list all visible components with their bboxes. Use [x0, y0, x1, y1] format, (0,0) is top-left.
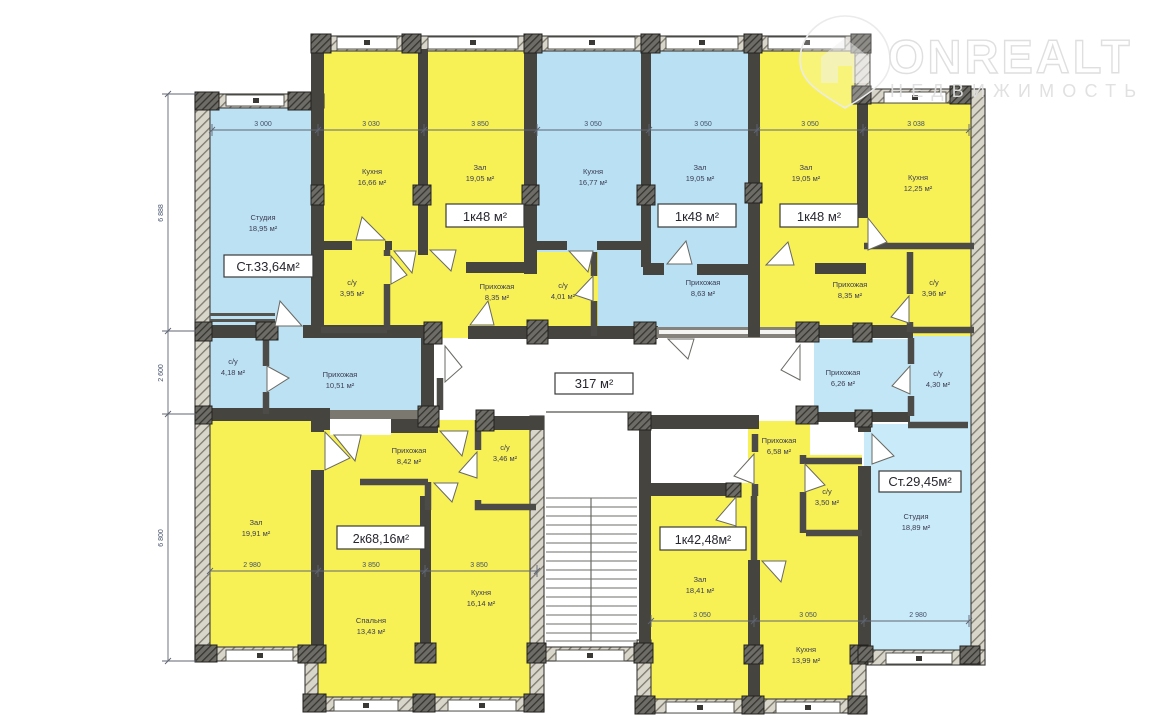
svg-text:16,66 м²: 16,66 м² — [358, 178, 387, 187]
svg-text:4,18 м²: 4,18 м² — [221, 368, 246, 377]
svg-text:Прихожая: Прихожая — [762, 436, 797, 445]
svg-text:Зал: Зал — [799, 163, 812, 172]
svg-text:3 030: 3 030 — [362, 121, 380, 128]
svg-text:4,30 м²: 4,30 м² — [926, 380, 951, 389]
svg-text:12,25 м²: 12,25 м² — [904, 184, 933, 193]
svg-text:Студия: Студия — [903, 512, 928, 521]
svg-text:18,89 м²: 18,89 м² — [902, 523, 931, 532]
svg-text:Ст.33,64м²: Ст.33,64м² — [236, 259, 300, 274]
svg-text:19,05 м²: 19,05 м² — [466, 174, 495, 183]
svg-text:с/у: с/у — [228, 357, 238, 366]
svg-text:2 600: 2 600 — [158, 364, 165, 382]
svg-text:16,14 м²: 16,14 м² — [467, 599, 496, 608]
svg-text:3 850: 3 850 — [362, 562, 380, 569]
svg-text:Ст.29,45м²: Ст.29,45м² — [888, 474, 952, 489]
svg-text:Кухня: Кухня — [908, 173, 928, 182]
svg-text:3 038: 3 038 — [907, 121, 925, 128]
svg-text:Зал: Зал — [693, 575, 706, 584]
svg-text:Прихожая: Прихожая — [833, 280, 868, 289]
svg-text:Прихожая: Прихожая — [392, 446, 427, 455]
svg-text:3 850: 3 850 — [471, 121, 489, 128]
svg-text:Прихожая: Прихожая — [826, 368, 861, 377]
svg-text:8,42 м²: 8,42 м² — [397, 457, 422, 466]
svg-text:1к48 м²: 1к48 м² — [675, 209, 720, 224]
svg-text:с/у: с/у — [822, 487, 832, 496]
svg-text:2к68,16м²: 2к68,16м² — [353, 532, 409, 546]
svg-text:6 800: 6 800 — [158, 529, 165, 547]
svg-text:6,58 м²: 6,58 м² — [767, 447, 792, 456]
svg-text:ONREALT: ONREALT — [888, 30, 1133, 83]
svg-text:18,41 м²: 18,41 м² — [686, 586, 715, 595]
svg-text:Прихожая: Прихожая — [480, 282, 515, 291]
svg-text:Кухня: Кухня — [471, 588, 491, 597]
svg-text:3 050: 3 050 — [799, 612, 817, 619]
svg-text:Прихожая: Прихожая — [686, 278, 721, 287]
svg-text:4,01 м²: 4,01 м² — [551, 292, 576, 301]
svg-text:19,91 м²: 19,91 м² — [242, 529, 271, 538]
svg-text:3 050: 3 050 — [694, 121, 712, 128]
svg-text:с/у: с/у — [347, 278, 357, 287]
svg-text:Зал: Зал — [249, 518, 262, 527]
svg-text:3,95 м²: 3,95 м² — [340, 289, 365, 298]
svg-text:Студия: Студия — [250, 213, 275, 222]
svg-text:16,77 м²: 16,77 м² — [579, 178, 608, 187]
svg-text:Спальня: Спальня — [356, 616, 386, 625]
svg-text:3,96 м²: 3,96 м² — [922, 289, 947, 298]
svg-text:18,95 м²: 18,95 м² — [249, 224, 278, 233]
svg-text:Зал: Зал — [473, 163, 486, 172]
svg-text:с/у: с/у — [500, 443, 510, 452]
svg-text:6 888: 6 888 — [158, 204, 165, 222]
svg-text:3 850: 3 850 — [470, 562, 488, 569]
svg-text:с/у: с/у — [929, 278, 939, 287]
svg-text:3 050: 3 050 — [693, 612, 711, 619]
svg-text:13,99 м²: 13,99 м² — [792, 656, 821, 665]
svg-text:19,05 м²: 19,05 м² — [792, 174, 821, 183]
svg-text:3 050: 3 050 — [584, 121, 602, 128]
svg-text:1к42,48м²: 1к42,48м² — [675, 533, 731, 547]
svg-text:НЕДВИЖИМОСТЬ: НЕДВИЖИМОСТЬ — [890, 81, 1144, 101]
svg-text:8,63 м²: 8,63 м² — [691, 289, 716, 298]
svg-text:Кухня: Кухня — [796, 645, 816, 654]
svg-text:Кухня: Кухня — [583, 167, 603, 176]
svg-text:8,35 м²: 8,35 м² — [838, 291, 863, 300]
svg-text:с/у: с/у — [933, 369, 943, 378]
svg-text:Зал: Зал — [693, 163, 706, 172]
svg-text:3 050: 3 050 — [801, 121, 819, 128]
svg-text:3,46 м²: 3,46 м² — [493, 454, 518, 463]
svg-text:6,26 м²: 6,26 м² — [831, 379, 856, 388]
svg-text:8,35 м²: 8,35 м² — [485, 293, 510, 302]
svg-text:Прихожая: Прихожая — [323, 370, 358, 379]
svg-text:1к48 м²: 1к48 м² — [463, 209, 508, 224]
svg-text:2 980: 2 980 — [243, 562, 261, 569]
svg-text:13,43 м²: 13,43 м² — [357, 627, 386, 636]
svg-text:3,50 м²: 3,50 м² — [815, 498, 840, 507]
svg-text:3 000: 3 000 — [254, 121, 272, 128]
svg-text:10,51 м²: 10,51 м² — [326, 381, 355, 390]
svg-text:2 980: 2 980 — [909, 612, 927, 619]
svg-text:317 м²: 317 м² — [575, 376, 614, 391]
svg-text:1к48 м²: 1к48 м² — [797, 209, 842, 224]
svg-text:19,05 м²: 19,05 м² — [686, 174, 715, 183]
svg-text:с/у: с/у — [558, 281, 568, 290]
svg-text:Кухня: Кухня — [362, 167, 382, 176]
